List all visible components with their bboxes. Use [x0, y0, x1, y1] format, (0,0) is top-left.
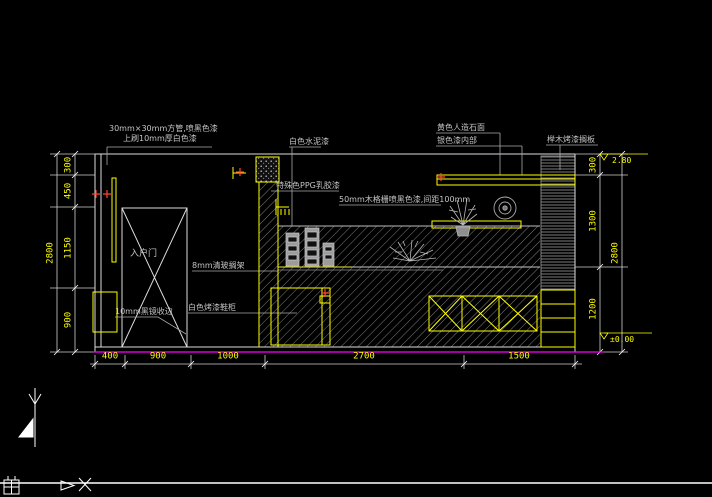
- dim-right-1200: 1200: [590, 298, 599, 320]
- door-label: 入户门: [130, 250, 157, 259]
- wall-fan-icon: [494, 197, 516, 219]
- cabinet-note: 白色烤漆鞋柜: [188, 303, 236, 312]
- cad-drawing-canvas: 30mm×30mm方管,喷黑色漆 上刷10mm厚白色漆 白色水泥漆 特殊色PPG…: [0, 0, 712, 497]
- dim-right-1300: 1300: [590, 210, 599, 232]
- page-border-elements: [0, 388, 712, 494]
- dim-right-total-2800: 2800: [612, 242, 621, 264]
- dim-bottom-900: 900: [150, 353, 166, 362]
- dim-bottom-2700: 2700: [353, 353, 375, 362]
- slat-note: 50mm木格栅喷黑色漆,间距100mm: [339, 195, 470, 204]
- ppg-paint-note: 特殊色PPG乳胶漆: [276, 181, 340, 190]
- dim-left-450: 450: [65, 183, 74, 199]
- elevation-linework: [0, 0, 712, 497]
- dim-left-total-2800: 2800: [47, 242, 56, 264]
- grid-icon: [4, 476, 19, 494]
- dim-bottom-1500: 1500: [508, 353, 530, 362]
- ceiling-paint-note: 白色水泥漆: [289, 137, 329, 146]
- dim-right-300: 300: [590, 157, 599, 173]
- tube-note-line2: 上刷10mm厚白色漆: [123, 134, 197, 143]
- dim-left-900: 900: [65, 312, 74, 328]
- tube-note-line1: 30mm×30mm方管,喷黑色漆: [109, 124, 218, 133]
- inner-finish-note: 银色漆内部: [437, 136, 477, 145]
- shelf-note: 榉木烤漆搁板: [547, 135, 595, 144]
- glass-shelf-note: 8mm清玻搁架: [192, 261, 245, 270]
- level-mark-bottom: ±0.00: [610, 335, 634, 344]
- mirror-trim-note: 10mm黑镜收边: [115, 307, 173, 316]
- dim-bottom-400: 400: [102, 353, 118, 362]
- level-symbols: [600, 154, 652, 339]
- dim-left-1150: 1150: [65, 237, 74, 259]
- level-mark-top: 2.80: [612, 156, 631, 165]
- x-axis-icon: [79, 478, 91, 491]
- section-arrow-icon: [19, 388, 41, 447]
- dim-left-300: 300: [65, 157, 74, 173]
- stone-note: 黄色人造石面: [437, 123, 485, 132]
- dim-bottom-1000: 1000: [217, 353, 239, 362]
